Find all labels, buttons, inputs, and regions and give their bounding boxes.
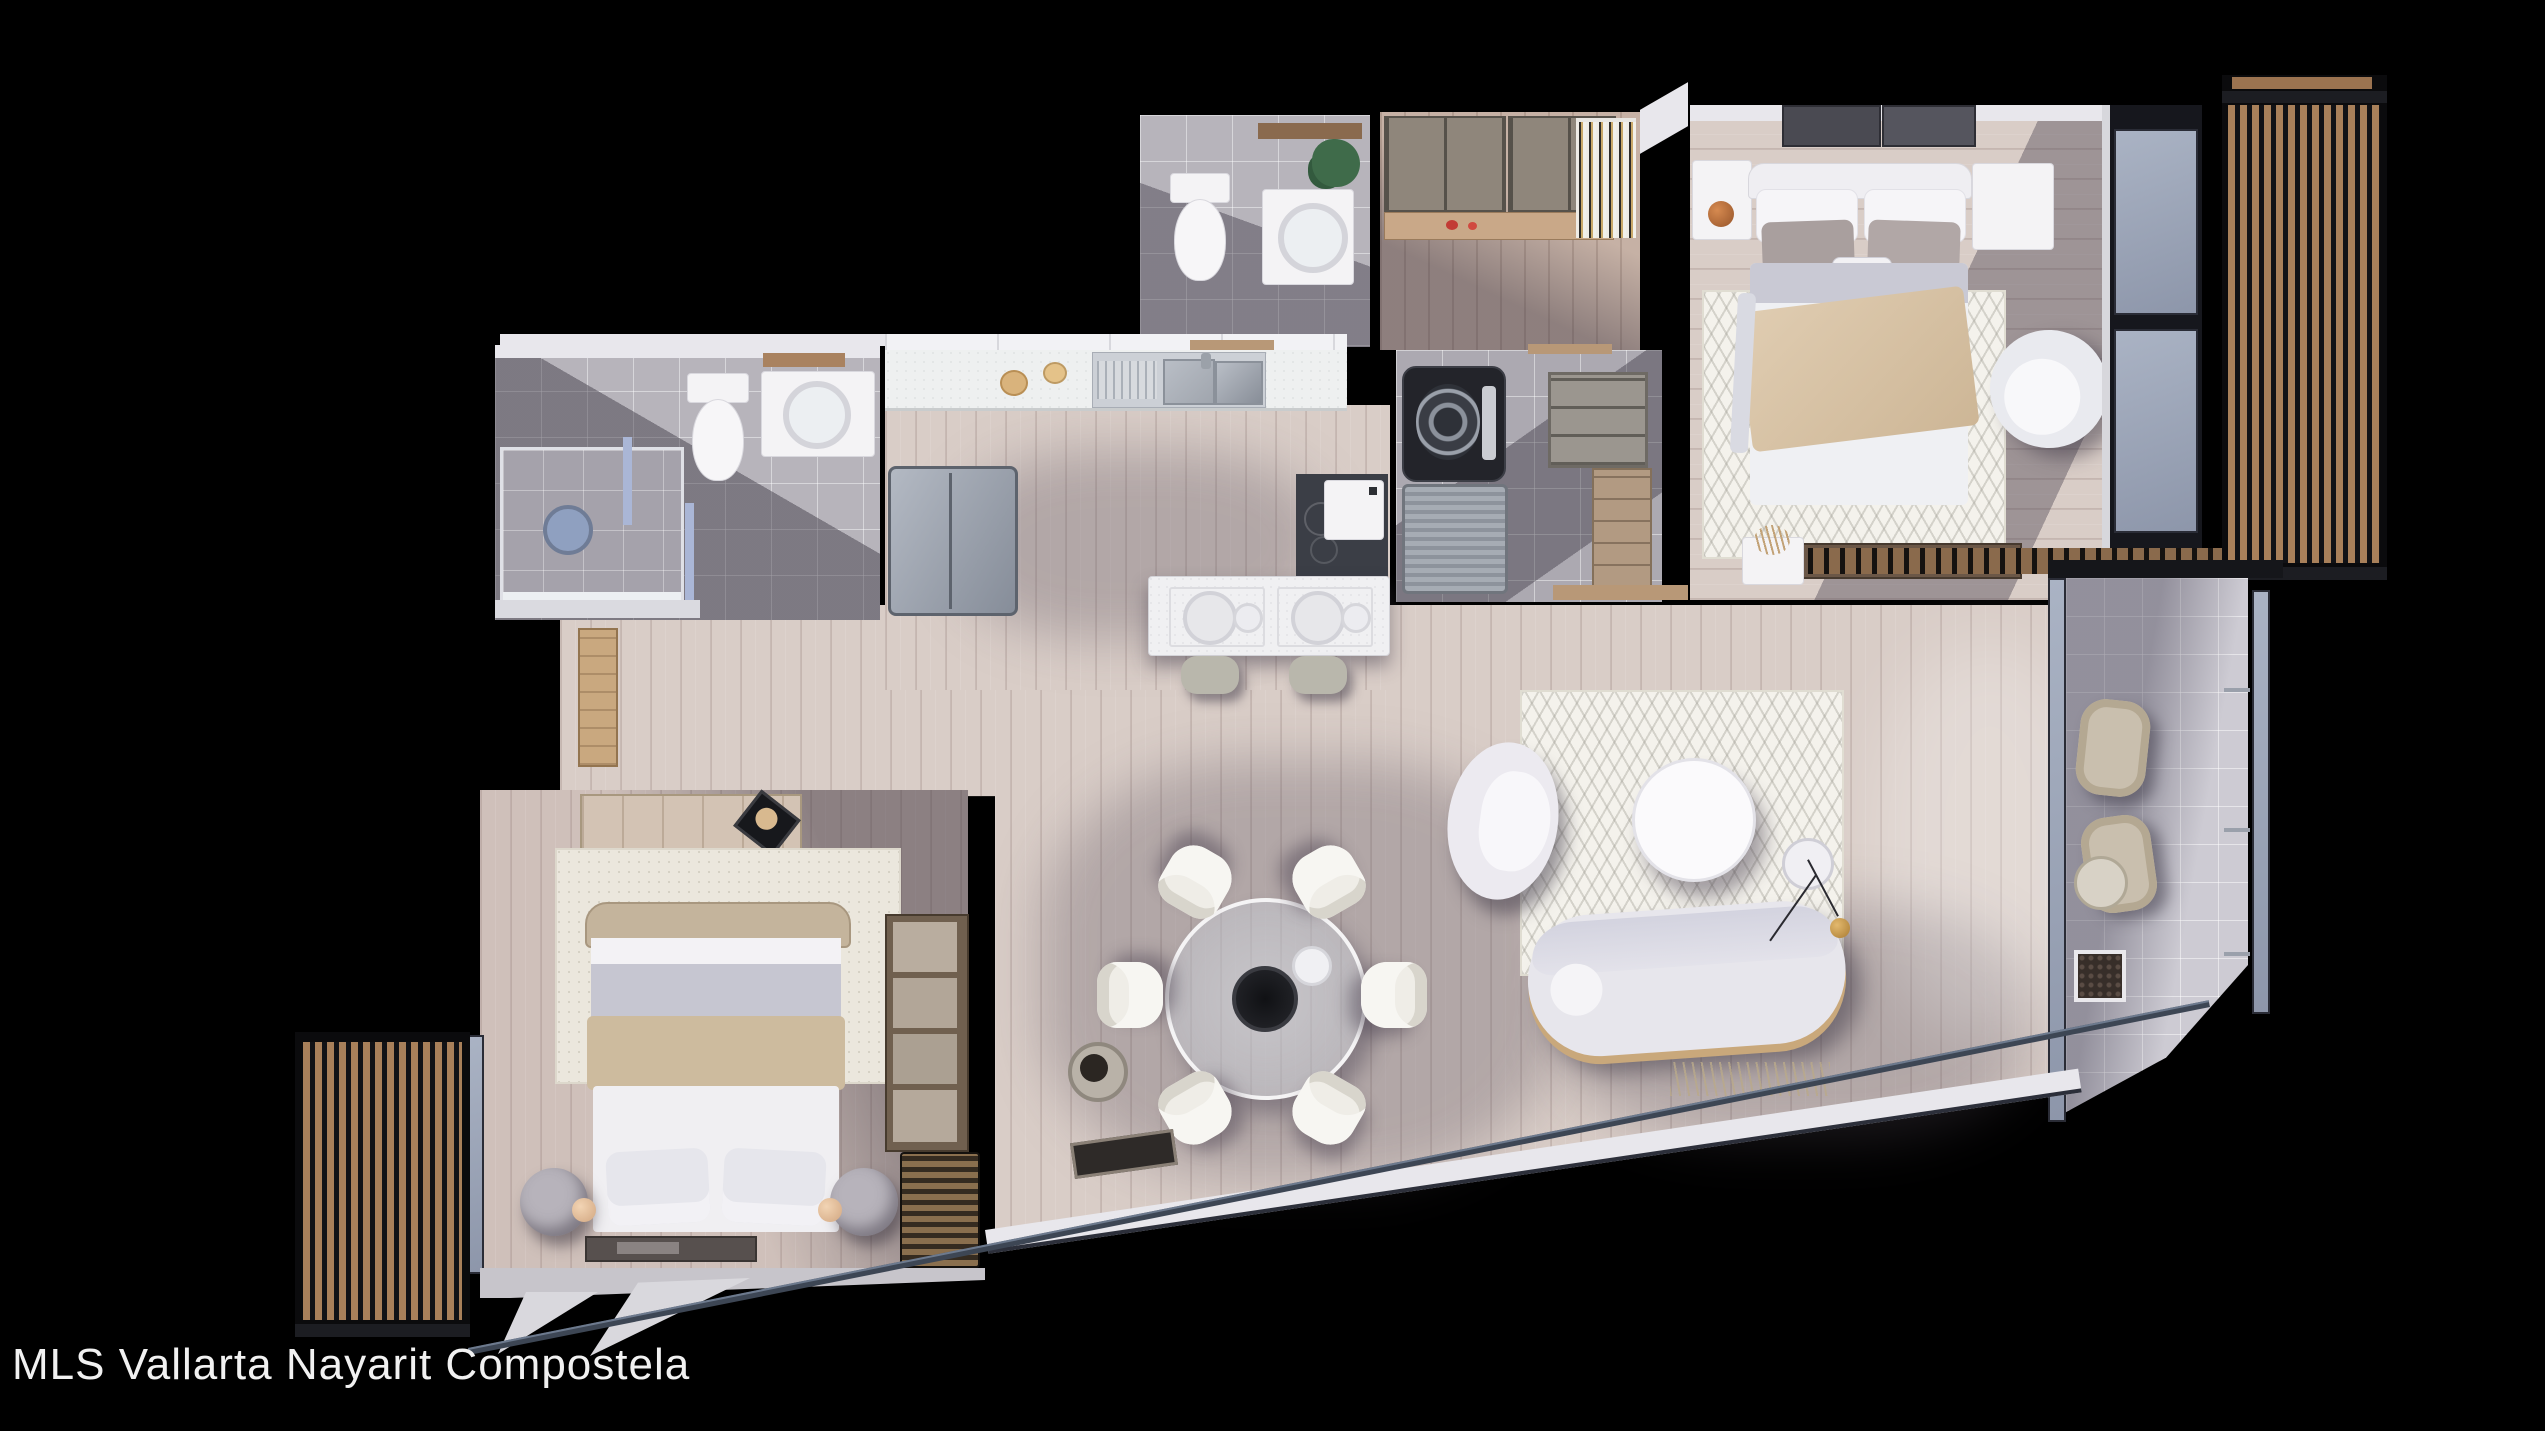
louver-top-bar <box>2222 91 2387 103</box>
guest-toilet-bowl <box>692 399 744 481</box>
laundry-threshold <box>1553 585 1688 600</box>
copper-lamp <box>1708 201 1734 227</box>
plate-right <box>1291 591 1345 645</box>
toilet-bowl <box>1174 199 1226 281</box>
kitchen-top-wall <box>500 334 885 346</box>
monstera-plant <box>1312 139 1360 187</box>
nightstand-drum-right <box>830 1168 898 1236</box>
slider-glass-upper <box>2114 129 2198 315</box>
shower-glass-door <box>685 503 694 615</box>
laundry-room <box>1396 350 1662 602</box>
bed2-gray-sheet <box>591 964 841 1020</box>
shower <box>500 447 684 615</box>
bedroom-balcony-louvers <box>295 1032 470 1337</box>
watermark-text: MLS Vallarta Nayarit Compostela <box>12 1340 690 1390</box>
window-sill <box>2102 105 2110 597</box>
washing-machine <box>1402 366 1506 482</box>
fridge-door-split <box>949 473 952 609</box>
terrace-glass-right <box>2252 590 2270 1014</box>
slider-glass-lower <box>2114 329 2198 533</box>
guest-bathroom <box>495 345 880 620</box>
dried-plant <box>1754 525 1790 555</box>
wall-shelf-bracket-1 <box>2224 688 2250 692</box>
coffee-table <box>1632 758 1756 882</box>
nightstand-left <box>1692 160 1752 240</box>
side-plate-right <box>1341 603 1371 633</box>
floorplan-render: MLS Vallarta Nayarit Compostela <box>0 0 2545 1431</box>
closet-threshold <box>1528 344 1612 354</box>
planter-soil <box>1080 1054 1108 1082</box>
utility-cabinet <box>1592 468 1652 590</box>
faucet <box>1201 353 1211 369</box>
master-bed <box>1748 163 1970 508</box>
kitchen-sink <box>1092 352 1266 408</box>
dining-chair-left <box>1097 962 1163 1028</box>
wall-shelf-bracket-3 <box>2224 952 2250 956</box>
lamp-bulb <box>1830 918 1850 938</box>
bed2-tan-band <box>587 1016 845 1090</box>
photo-image <box>751 803 782 834</box>
wardrobe-cell-3 <box>893 1034 957 1084</box>
counter-bowl-2 <box>1043 362 1067 384</box>
refrigerator <box>888 466 1018 616</box>
bathroom-door <box>578 628 618 767</box>
nightstand-right <box>1972 163 2054 250</box>
plate-left <box>1183 591 1237 645</box>
wardrobe-cell-1 <box>893 922 957 972</box>
master-bedroom <box>1690 105 2105 600</box>
terrace-chair-top <box>2073 697 2153 800</box>
clothes-rail <box>1576 118 1636 238</box>
guest-bath-ledge <box>495 600 700 618</box>
second-bed <box>585 902 847 1238</box>
sink-basin-right <box>1215 361 1263 405</box>
round-sink <box>1278 203 1348 273</box>
bedroom-louver-slats <box>303 1042 462 1320</box>
wardrobe-cabinet-left <box>1384 116 1506 212</box>
burner-ring-2 <box>1310 536 1338 564</box>
lounge-chair-seat <box>1994 348 2091 445</box>
vanity-wood-ledge <box>1258 123 1362 139</box>
shoe-red-accent <box>1446 220 1458 230</box>
barstool-left <box>1181 656 1239 694</box>
master-balcony-louvers <box>2222 75 2387 580</box>
washer-controls <box>1482 386 1496 460</box>
bedroom-louver-bottom <box>295 1324 470 1337</box>
dryer <box>1402 484 1508 594</box>
guest-vanity-ledge <box>763 353 845 367</box>
ceiling-mat-left <box>1782 105 1881 147</box>
ceiling-mat-right <box>1882 105 1976 147</box>
wardrobe-cell-4 <box>893 1090 957 1142</box>
drum-lamp-right <box>818 1198 842 1222</box>
closet-top-wall <box>1640 82 1688 154</box>
bedroom2-wardrobe <box>885 914 969 1152</box>
small-appliance <box>1324 480 1384 540</box>
louver-slats <box>2228 105 2380 563</box>
wardrobe-cell-2 <box>893 978 957 1028</box>
sink-drainboard <box>1097 361 1157 399</box>
walk-in-closet <box>1380 112 1640 350</box>
terrace <box>2048 560 2283 1125</box>
dining-chair-right <box>1361 962 1427 1028</box>
barstool-right <box>1289 656 1347 694</box>
armchair-cushion <box>1473 767 1556 876</box>
appliance-button <box>1369 487 1377 495</box>
louver-top-rail <box>2232 77 2372 89</box>
wall-shelf-bracket-2 <box>2224 828 2250 832</box>
terrace-table <box>2074 856 2128 910</box>
pebble-inset <box>2074 950 2126 1002</box>
guest-round-sink <box>783 381 851 449</box>
bathroom-threshold <box>1190 340 1274 350</box>
counter-bowl <box>1000 370 1028 396</box>
centerpiece-plate <box>1292 946 1332 986</box>
sofa <box>1523 897 1850 1061</box>
throw-blanket <box>1736 286 1979 453</box>
drum-lamp-left <box>572 1198 596 1222</box>
shower-head <box>543 505 593 555</box>
side-table <box>1782 838 1834 890</box>
bench-tray <box>617 1242 679 1254</box>
bed2-pillow-right <box>721 1147 827 1226</box>
kitchen <box>885 330 1390 690</box>
shoe-red-accent-2 <box>1468 222 1477 230</box>
centerpiece-bowl <box>1232 966 1298 1032</box>
kitchen-island <box>1148 576 1390 656</box>
upper-cabinets <box>885 334 1347 350</box>
bed2-pillow-left <box>605 1147 711 1226</box>
terrace-glass-left <box>2048 578 2066 1122</box>
foot-bench <box>585 1236 757 1262</box>
shower-glass-panel <box>623 437 632 525</box>
master-window-wall <box>2102 105 2202 597</box>
floor-planter <box>1068 1042 1128 1102</box>
side-plate-left <box>1233 603 1263 633</box>
cooktop-counter <box>1296 474 1388 578</box>
terrace-top-bar <box>2048 560 2283 578</box>
main-bathroom <box>1140 115 1370 347</box>
washer-drum <box>1416 384 1480 460</box>
second-bedroom <box>480 790 968 1268</box>
utility-shelf <box>1548 372 1648 468</box>
